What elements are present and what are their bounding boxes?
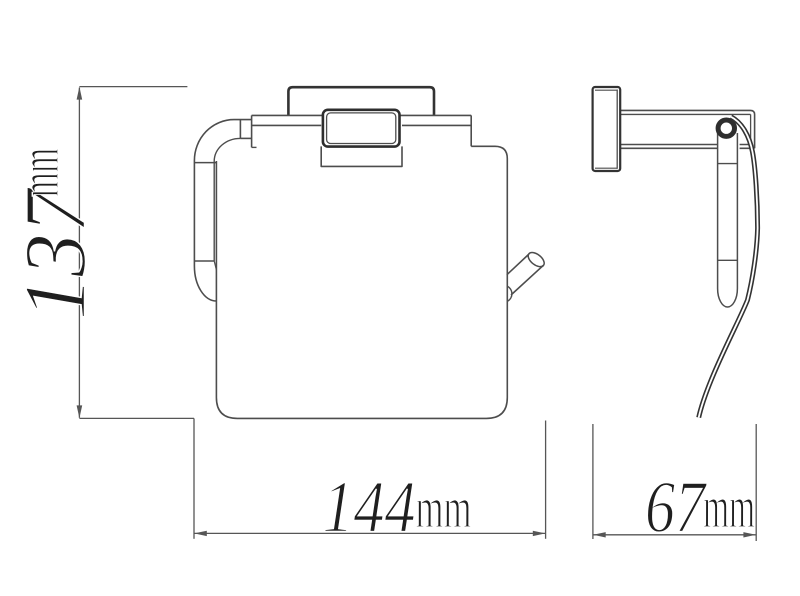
- svg-text:144: 144: [322, 466, 415, 548]
- svg-text:mm: mm: [9, 148, 71, 197]
- svg-text:mm: mm: [703, 474, 755, 540]
- svg-text:137: 137: [8, 186, 105, 320]
- svg-text:mm: mm: [415, 475, 471, 540]
- svg-text:67: 67: [645, 466, 708, 548]
